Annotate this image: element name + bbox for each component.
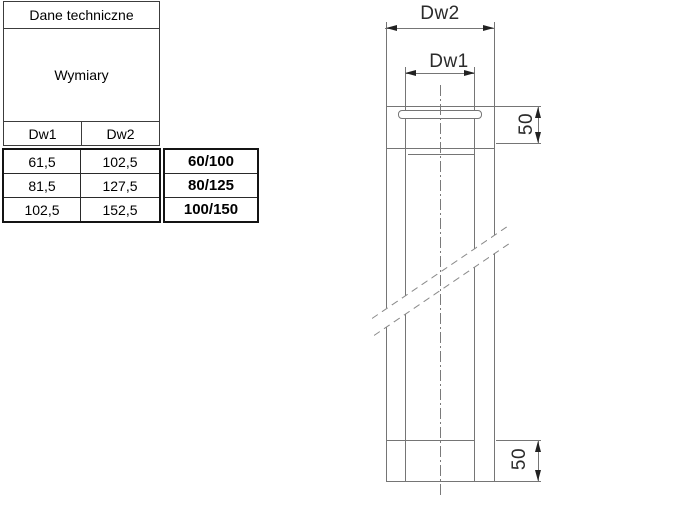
bottom50-arrow-up (535, 441, 541, 452)
pipe-inner-wall-left-lower (405, 314, 406, 481)
break-line-lower (374, 243, 510, 336)
dw2-dimension-line (385, 28, 495, 29)
pipe-inner-wall-right-lower (474, 267, 475, 481)
pipe-inner-wall-left-upper (405, 67, 406, 296)
dw1-label: Dw1 (417, 51, 481, 73)
dw1-arrow-left (405, 70, 416, 76)
bottom50-label: 50 (509, 439, 529, 479)
bottom50-arrow-down (535, 470, 541, 481)
pipe-socket-line (386, 440, 474, 441)
pipe-bottom-edge (386, 481, 541, 482)
pipe-outer-wall-right-upper (494, 22, 495, 235)
pipe-joint-line-inner (408, 154, 474, 155)
pipe-drawing: Dw2 Dw1 50 50 (0, 0, 700, 505)
pipe-outer-wall-right-lower (494, 253, 495, 481)
pipe-outer-wall-left-lower (386, 327, 387, 481)
technical-data-sheet: Dane techniczne Wymiary Dw1 Dw2 61,5 102… (0, 0, 700, 505)
dw2-arrow-right (483, 25, 494, 31)
pipe-outer-wall-left-upper (386, 22, 387, 308)
top50-label: 50 (516, 104, 536, 144)
dw2-arrow-left (386, 25, 397, 31)
pipe-inner-wall-right-upper (474, 67, 475, 249)
dw2-label: Dw2 (408, 3, 472, 25)
